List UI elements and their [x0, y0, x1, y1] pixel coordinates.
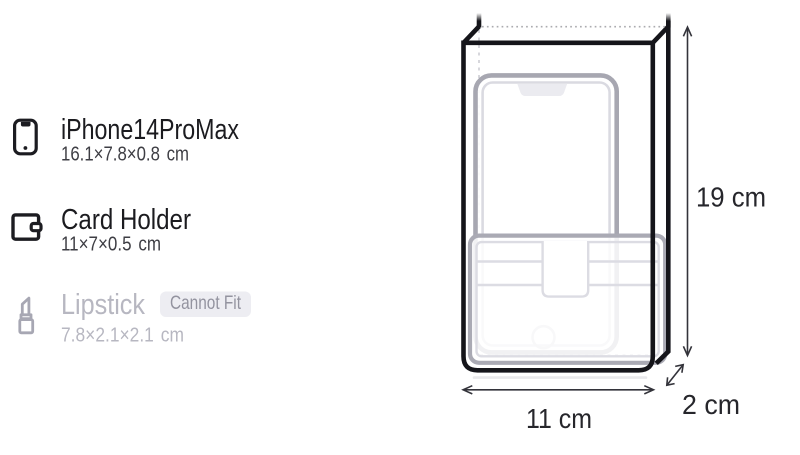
svg-text:iPhone14ProMax: iPhone14ProMax [61, 114, 239, 146]
svg-text:16.1×7.8×0.8 cm: 16.1×7.8×0.8 cm [61, 143, 189, 166]
svg-text:2 cm: 2 cm [682, 389, 740, 420]
svg-text:19 cm: 19 cm [696, 182, 766, 213]
svg-text:Lipstick: Lipstick [61, 289, 145, 321]
svg-text:11 cm: 11 cm [526, 403, 592, 434]
svg-text:7.8×2.1×2.1 cm: 7.8×2.1×2.1 cm [61, 324, 184, 347]
svg-text:Cannot Fit: Cannot Fit [170, 292, 241, 314]
svg-text:11×7×0.5 cm: 11×7×0.5 cm [61, 233, 161, 256]
svg-text:Card Holder: Card Holder [61, 204, 191, 236]
